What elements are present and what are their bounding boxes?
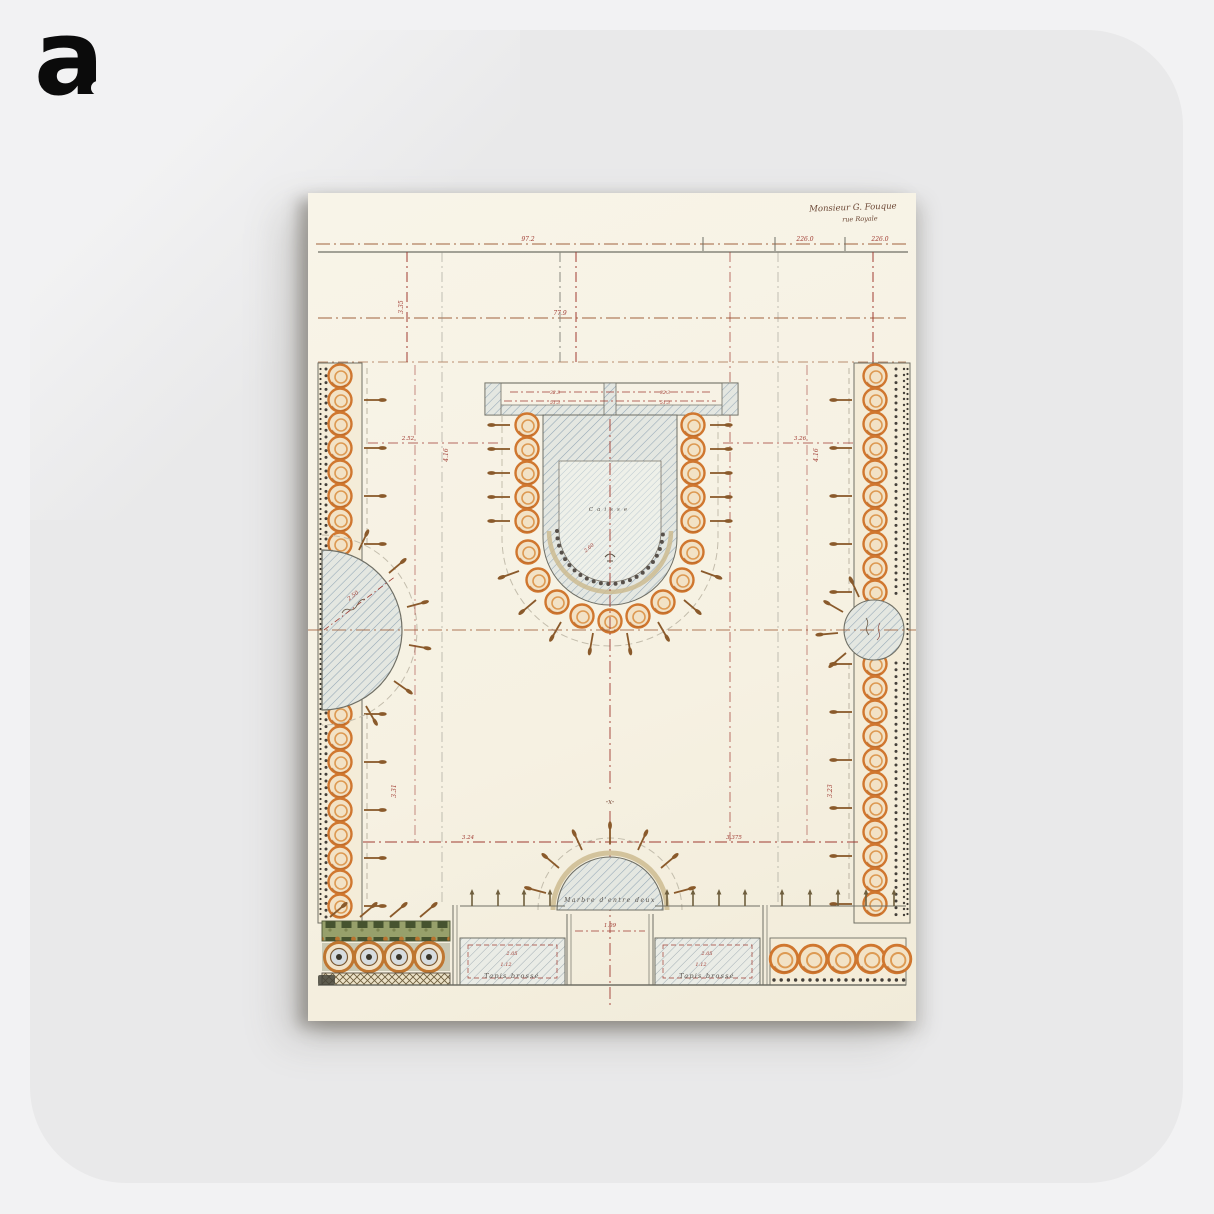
dim-2-05-left: 2.05 [505,951,517,957]
dim-51-3-left: 51.3 [550,400,560,406]
dim-3-23: 3.23 [827,784,834,798]
signature: Monsieur G. Fouque rue Royale [808,201,897,223]
dim-51-3-right: 51.3 [660,400,670,406]
site-logo[interactable]: a [34,8,144,118]
label-tapis-left: Tapis brossé [484,972,539,980]
trellis-band [322,973,450,985]
dim-1-12-right: 1.12 [695,962,706,968]
dim-3-26: 3.26 [794,436,807,442]
dim-4-16-right: 4.16 [813,448,820,463]
dim-1-09: 1.09 [604,923,617,929]
dim-1-12-left: 1.12 [500,962,511,968]
dim-3-375: 3.375 [726,835,742,841]
logo-letter: a [34,8,144,108]
label-arch: Marbre d'entre deux [563,897,656,904]
dim-4-16-left: 4.16 [443,448,450,463]
dim-226-right: 226.0 [870,236,888,243]
dim-32-3-right: 32.3 [660,390,670,396]
garden-plan-drawing: 97.2 226.0 226.0 77.9 3.35 Monsieur G. F… [308,193,916,1021]
horseshoe-top-frame [485,383,738,415]
signature-line1: Monsieur G. Fouque [808,201,897,214]
label-tapis-right: Tapis brossé [679,972,734,980]
foliage-band [322,921,450,941]
dim-2-05-right: 2.05 [700,951,712,957]
dim-32-3-left: 32.3 [550,390,560,396]
dim-3-24: 3.24 [462,835,475,841]
dim-3-31: 3.31 [391,784,398,797]
dim-77-9: 77.9 [553,310,567,317]
bottom-right-tree-row [770,938,911,985]
dim-3-35: 3.35 [398,300,405,314]
dim-2-52: 2.52 [401,436,415,442]
dim-226-left: 226.0 [795,236,813,243]
logo-dot [91,81,105,95]
poster-product-image[interactable]: 97.2 226.0 226.0 77.9 3.35 Monsieur G. F… [308,193,916,1021]
label-x-mark: -x- [606,798,615,806]
dim-97-2: 97.2 [521,236,535,243]
signature-line2: rue Royale [842,214,878,223]
ink-blot [318,975,335,985]
